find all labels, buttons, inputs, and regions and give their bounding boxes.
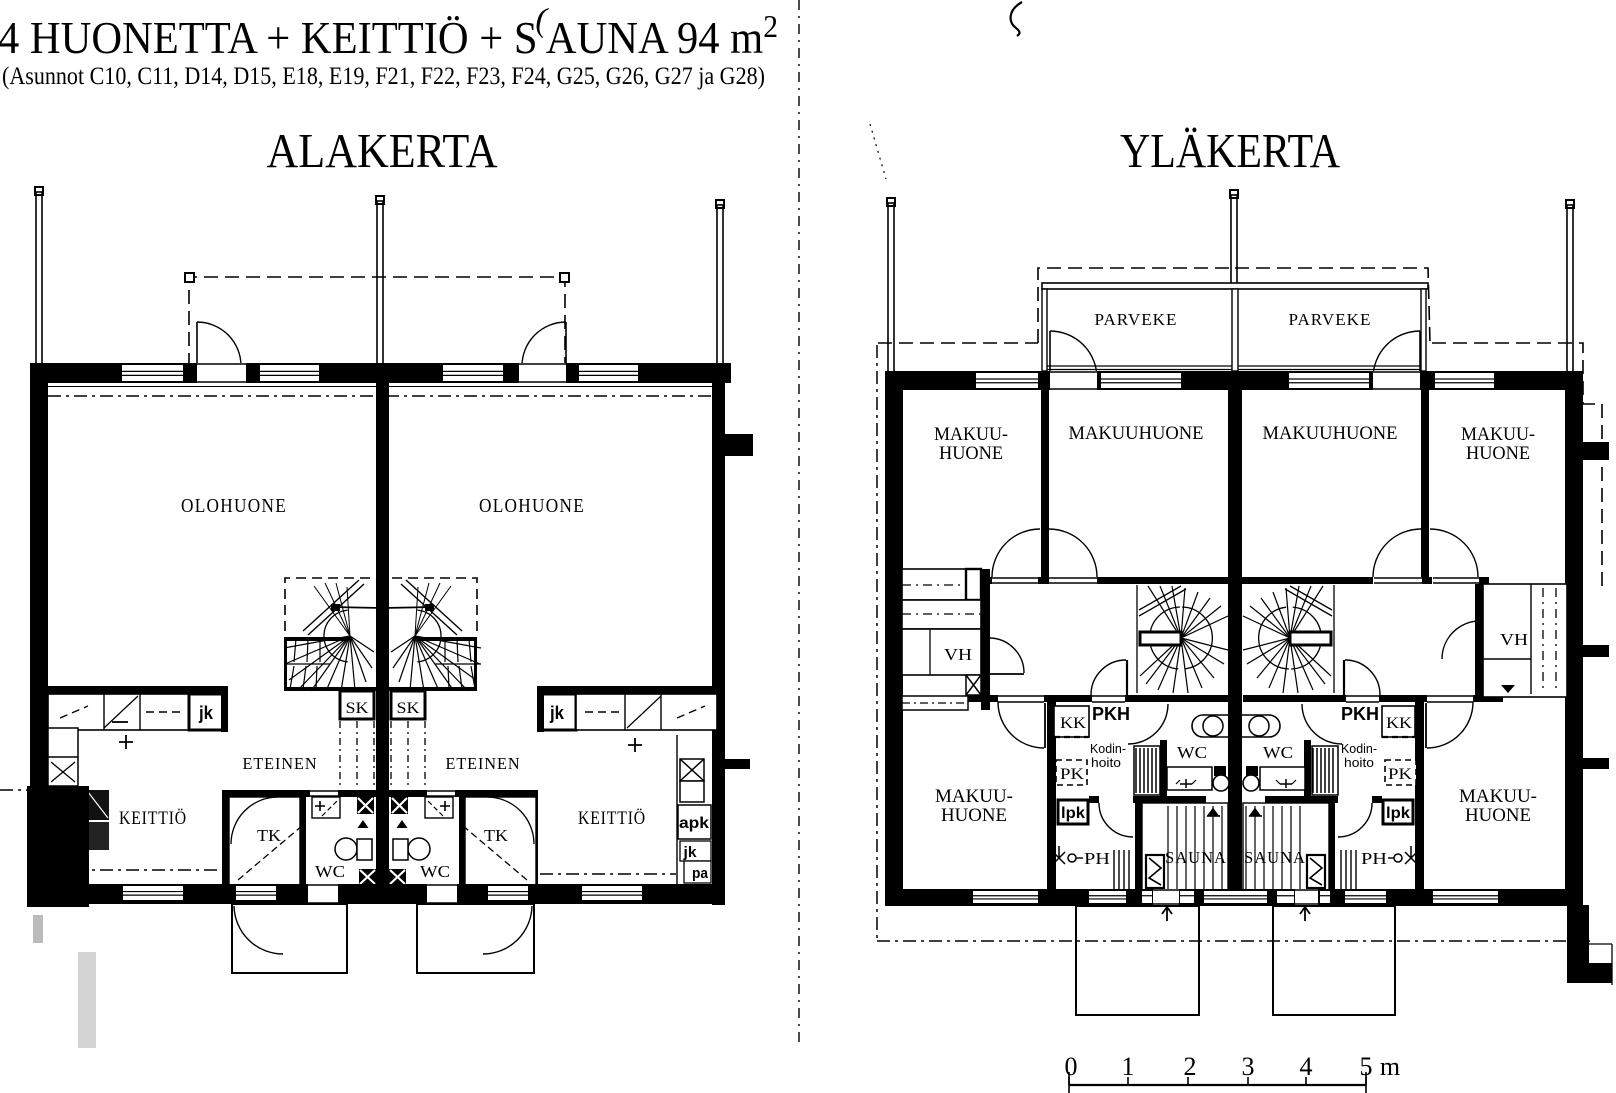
svg-text:KK: KK — [1386, 715, 1413, 732]
svg-text:1: 1 — [1122, 1052, 1135, 1081]
svg-text:TK: TK — [484, 826, 509, 845]
svg-text:MAKUU-: MAKUU- — [1461, 424, 1535, 445]
svg-text:MAKUUHUONE: MAKUUHUONE — [1069, 423, 1204, 444]
svg-text:OLOHUONE: OLOHUONE — [479, 495, 585, 517]
svg-text:jk: jk — [682, 844, 697, 861]
svg-text:hoito: hoito — [1091, 755, 1121, 770]
svg-text:WC: WC — [420, 862, 450, 881]
svg-text:3: 3 — [1242, 1052, 1255, 1081]
svg-text:WC: WC — [315, 862, 345, 881]
svg-text:PH: PH — [1361, 849, 1387, 868]
svg-text:YLÄKERTA: YLÄKERTA — [1120, 123, 1341, 178]
svg-text:SAUNA: SAUNA — [1244, 848, 1306, 867]
svg-text:HUONE: HUONE — [939, 443, 1003, 464]
svg-text:4: 4 — [1300, 1052, 1313, 1081]
svg-text:HUONE: HUONE — [941, 805, 1007, 826]
svg-text:(Asunnot C10, C11, D14, D15, E: (Asunnot C10, C11, D14, D15, E18, E19, F… — [2, 63, 765, 90]
svg-text:SAUNA: SAUNA — [1165, 848, 1227, 867]
svg-text:MAKUUHUONE: MAKUUHUONE — [1263, 423, 1398, 444]
svg-text:jk: jk — [549, 703, 565, 723]
svg-text:apk: apk — [679, 815, 709, 832]
svg-text:KK: KK — [1060, 715, 1087, 732]
svg-text:WC: WC — [1177, 743, 1207, 762]
svg-text:hoito: hoito — [1344, 755, 1374, 770]
svg-text:PK: PK — [1060, 766, 1085, 783]
svg-text:SK: SK — [346, 700, 370, 717]
svg-text:pa: pa — [692, 865, 709, 882]
svg-text:ALAKERTA: ALAKERTA — [267, 123, 499, 178]
svg-text:Kodin-: Kodin- — [1341, 741, 1377, 756]
svg-text:PKH: PKH — [1341, 704, 1379, 724]
svg-text:PK: PK — [1388, 766, 1413, 783]
svg-text:MAKUU-: MAKUU- — [1459, 786, 1537, 807]
svg-text:MAKUU-: MAKUU- — [934, 424, 1008, 445]
svg-text:ETEINEN: ETEINEN — [446, 754, 521, 773]
svg-text:HUONE: HUONE — [1465, 805, 1531, 826]
svg-text:PH: PH — [1084, 849, 1110, 868]
svg-text:VH: VH — [1500, 630, 1528, 649]
svg-text:WC: WC — [1263, 743, 1293, 762]
svg-text:VH: VH — [944, 645, 972, 664]
svg-text:lpk: lpk — [1061, 805, 1085, 822]
svg-text:jk: jk — [198, 703, 214, 723]
svg-text:PARVEKE: PARVEKE — [1095, 310, 1178, 329]
svg-text:PKH: PKH — [1092, 704, 1130, 724]
svg-text:MAKUU-: MAKUU- — [935, 786, 1013, 807]
svg-text:HUONE: HUONE — [1466, 443, 1530, 464]
svg-text:Kodin-: Kodin- — [1090, 741, 1126, 756]
svg-text:KEITTIÖ: KEITTIÖ — [578, 808, 646, 829]
svg-text:KEITTIÖ: KEITTIÖ — [119, 808, 187, 829]
svg-text:m: m — [1380, 1052, 1400, 1081]
svg-text:TK: TK — [257, 826, 282, 845]
svg-text:OLOHUONE: OLOHUONE — [181, 495, 287, 517]
svg-text:SK: SK — [397, 700, 421, 717]
svg-text:ETEINEN: ETEINEN — [243, 754, 318, 773]
svg-text:PARVEKE: PARVEKE — [1289, 310, 1372, 329]
svg-text:0: 0 — [1065, 1052, 1078, 1081]
svg-text:2: 2 — [1184, 1052, 1197, 1081]
svg-text:4 HUONETTA + KEITTIÖ + S AUNA: 4 HUONETTA + KEITTIÖ + S AUNA 94 m2 — [0, 8, 778, 63]
svg-text:lpk: lpk — [1386, 805, 1410, 822]
